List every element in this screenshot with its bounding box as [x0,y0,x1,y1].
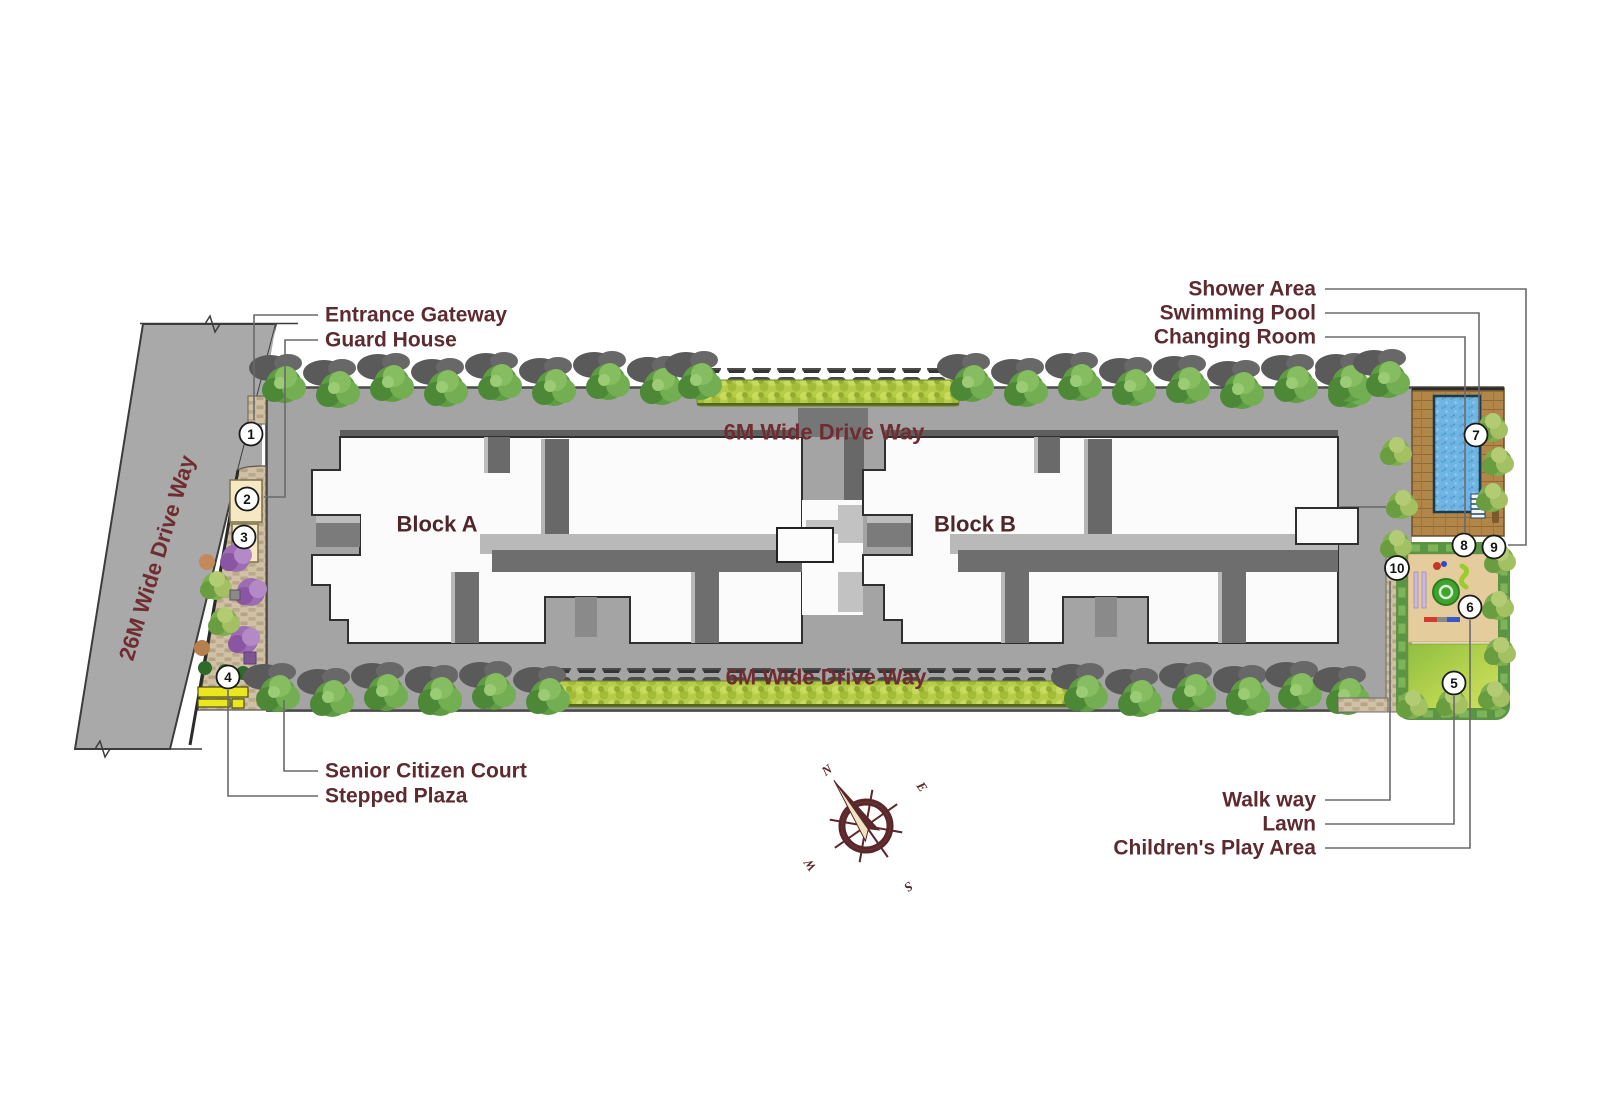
seesaw [1424,617,1460,622]
svg-text:1: 1 [247,427,255,442]
block-a-label: Block A [396,512,477,537]
svg-text:3: 3 [240,530,248,545]
tree-row-top-right [937,349,1410,409]
site-marker-10: 10 [1385,556,1409,580]
site-marker-2: 2 [236,488,259,511]
compass-west: W [800,855,820,874]
merry-go-round [1433,579,1459,605]
site-marker-7: 7 [1465,424,1488,447]
svg-text:8: 8 [1460,538,1468,553]
label-lawn: Lawn [1262,813,1316,836]
compass-needle-light [827,780,873,841]
site-plan-svg: 26M Wide Drive Way [0,0,1600,1110]
svg-text:10: 10 [1389,561,1404,576]
site-marker-3: 3 [233,526,256,549]
site-marker-8: 8 [1453,534,1476,557]
site-marker-4: 4 [217,666,240,689]
label-senior-citizen-court: Senior Citizen Court [325,760,527,783]
svg-text:5: 5 [1450,676,1458,691]
svg-text:4: 4 [224,670,232,685]
entrance-gateway-marker [248,396,266,424]
walkway-bottom [1338,698,1388,712]
site-plan-page: 26M Wide Drive Way [0,0,1600,1110]
label-walk-way: Walk way [1222,789,1316,812]
label-children-play-area: Children's Play Area [1113,837,1316,860]
central-lobby-box [777,528,833,562]
compass-east: E [913,778,931,795]
site-marker-9: 9 [1483,536,1506,559]
site-marker-6: 6 [1459,596,1482,619]
compass-south: S [901,879,916,895]
label-changing-room: Changing Room [1154,326,1316,349]
svg-text:9: 9 [1490,540,1498,555]
label-guard-house: Guard House [325,329,457,352]
svg-text:2: 2 [243,492,251,507]
site-marker-5: 5 [1443,672,1466,695]
block-b-label: Block B [934,512,1016,537]
block-b-footprint: Block B [863,430,1358,643]
label-shower-area: Shower Area [1188,278,1316,301]
label-stepped-plaza: Stepped Plaza [325,785,468,808]
compass-north: N [818,761,836,780]
spring-rider [1433,562,1441,570]
site-marker-1: 1 [240,423,263,446]
svg-text:6: 6 [1466,600,1474,615]
top-driveway-label: 6M Wide Drive Way [724,420,925,445]
label-swimming-pool: Swimming Pool [1160,302,1316,325]
label-entrance-gateway: Entrance Gateway [325,304,507,327]
bottom-driveway-label: 6M Wide Drive Way [726,665,927,690]
compass-rose: N E S W [760,720,975,937]
svg-text:7: 7 [1472,428,1480,443]
top-hedge-row [697,368,959,406]
